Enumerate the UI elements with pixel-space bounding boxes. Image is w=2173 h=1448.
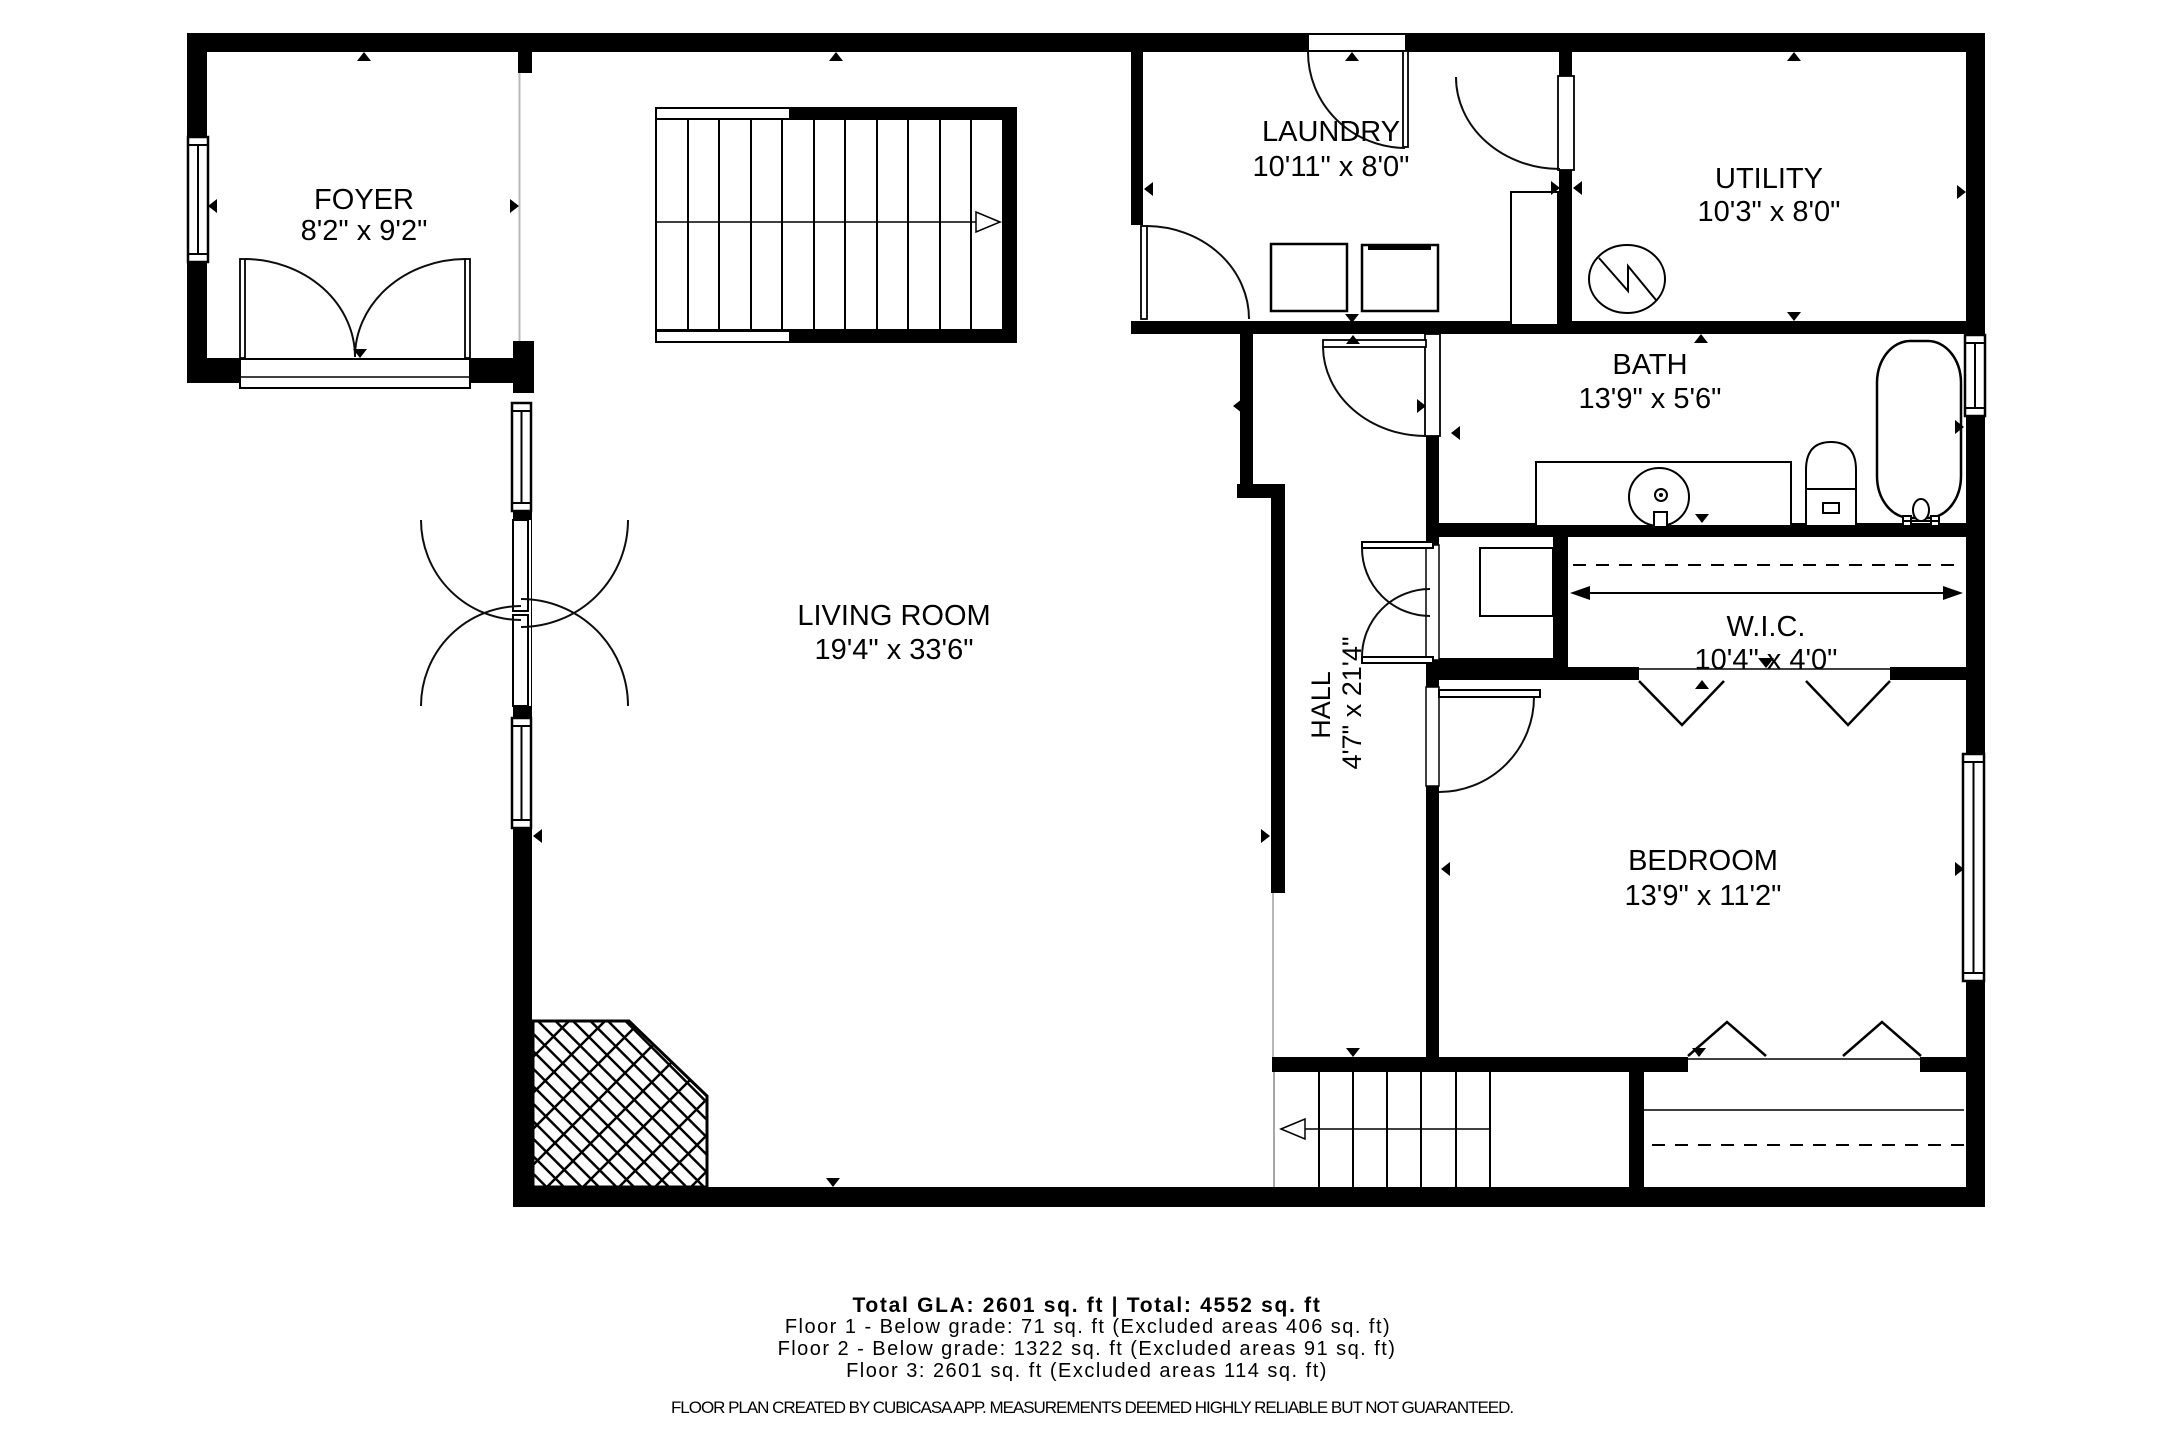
svg-text:13'9" x 5'6": 13'9" x 5'6": [1579, 383, 1722, 415]
svg-text:BEDROOM: BEDROOM: [1628, 845, 1778, 877]
svg-text:Total GLA: 2601 sq. ft | Total: Total GLA: 2601 sq. ft | Total: 4552 sq.…: [852, 1294, 1321, 1317]
svg-text:BATH: BATH: [1612, 349, 1687, 381]
svg-text:W.I.C.: W.I.C.: [1727, 611, 1806, 643]
svg-text:FOYER: FOYER: [314, 184, 414, 216]
svg-text:Floor 1 - Below grade: 71 sq.: Floor 1 - Below grade: 71 sq. ft (Exclud…: [785, 1316, 1391, 1338]
svg-text:13'9" x 11'2": 13'9" x 11'2": [1625, 880, 1782, 912]
svg-text:HALL: HALL: [1306, 671, 1336, 739]
svg-text:UTILITY: UTILITY: [1715, 163, 1823, 195]
svg-text:FLOOR PLAN CREATED BY CUBICASA: FLOOR PLAN CREATED BY CUBICASA APP. MEAS…: [671, 1398, 1513, 1417]
svg-text:8'2" x 9'2": 8'2" x 9'2": [301, 215, 428, 247]
svg-text:Floor 2 - Below grade: 1322 sq: Floor 2 - Below grade: 1322 sq. ft (Excl…: [778, 1338, 1397, 1360]
svg-text:LIVING ROOM: LIVING ROOM: [797, 600, 990, 632]
svg-text:LAUNDRY: LAUNDRY: [1262, 116, 1400, 148]
svg-text:19'4" x 33'6": 19'4" x 33'6": [814, 634, 973, 666]
svg-text:Floor 3: 2601 sq. ft (Excluded: Floor 3: 2601 sq. ft (Excluded areas 114…: [846, 1360, 1328, 1382]
svg-text:4'7" x 21'4": 4'7" x 21'4": [1337, 636, 1367, 769]
svg-text:10'11" x 8'0": 10'11" x 8'0": [1253, 151, 1410, 183]
svg-text:10'3" x 8'0": 10'3" x 8'0": [1698, 196, 1841, 228]
svg-text:10'4" x 4'0": 10'4" x 4'0": [1695, 644, 1838, 676]
